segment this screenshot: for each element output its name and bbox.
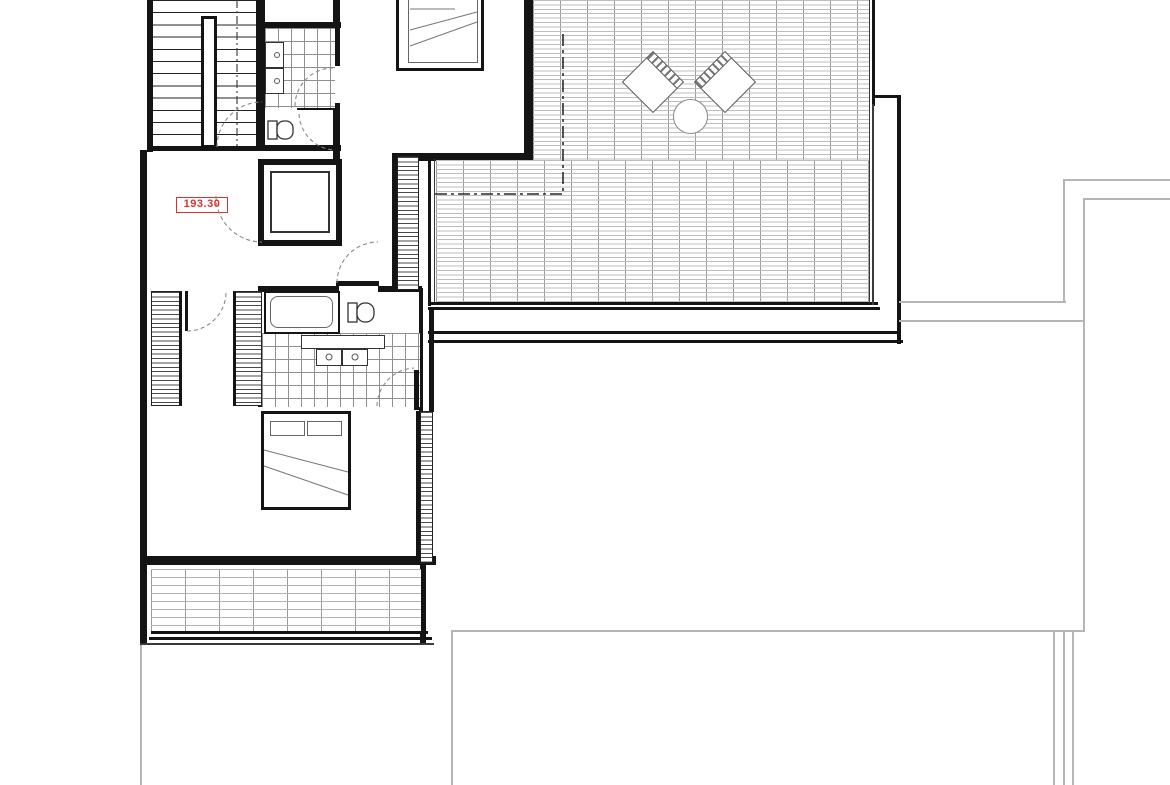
toilet-middle xyxy=(348,303,374,322)
roof-overhang-line xyxy=(434,34,563,194)
faucet-cabinet-upper xyxy=(275,53,280,58)
faucet-sink-right xyxy=(352,354,358,360)
toilet-wc1 xyxy=(268,121,293,139)
door-arc-bathroom1 xyxy=(295,68,333,106)
door-arc-wc1 xyxy=(299,114,333,150)
faucet-cabinet-lower xyxy=(275,79,280,84)
door-arc-bedroom2-left xyxy=(187,292,226,331)
annotation-overlay xyxy=(0,0,1170,785)
door-arc-hall xyxy=(216,196,262,242)
floor-plan-canvas: 193.30 xyxy=(0,0,1170,785)
door-arc-stairs xyxy=(217,102,262,147)
faucet-sink-left xyxy=(326,354,332,360)
door-arc-bedroom2-hall xyxy=(337,242,378,283)
door-arc-bathroom2 xyxy=(377,368,414,406)
bed-top-folds xyxy=(410,9,477,46)
bed-bottom-folds xyxy=(264,450,348,495)
